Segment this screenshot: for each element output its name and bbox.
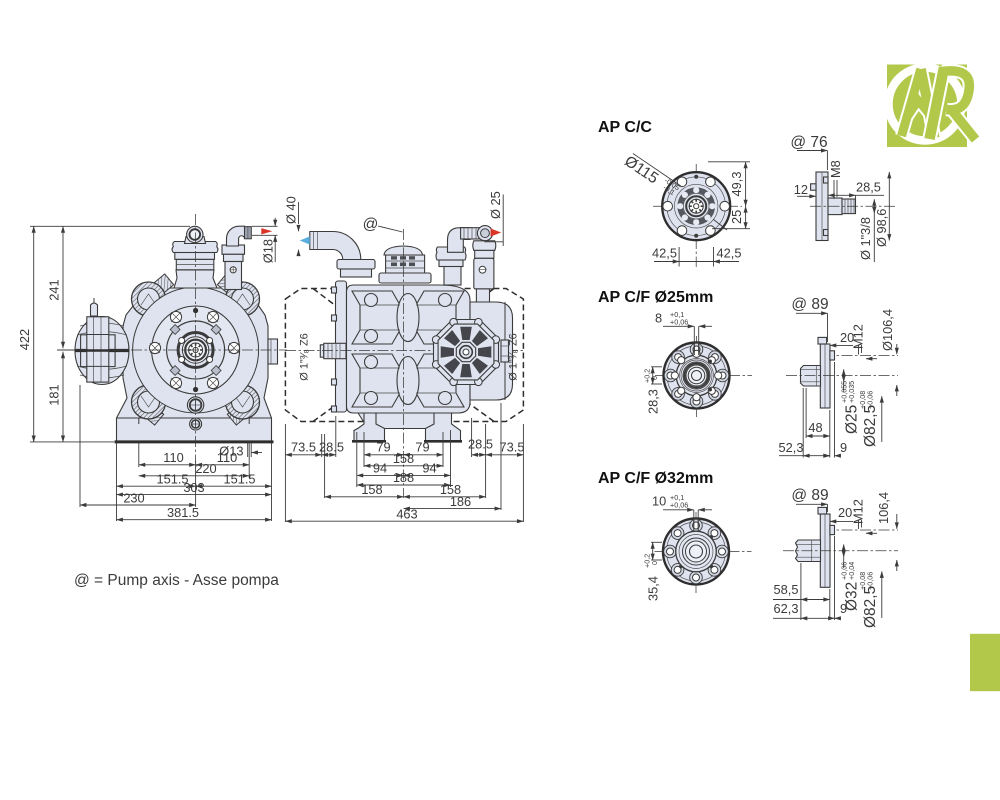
svg-text:@ 89: @ 89 xyxy=(791,487,828,504)
svg-text:AP C/F Ø25mm: AP C/F Ø25mm xyxy=(598,289,713,306)
svg-text:58,5: 58,5 xyxy=(774,582,799,597)
svg-text:M8: M8 xyxy=(828,160,843,178)
svg-text:422: 422 xyxy=(17,329,32,350)
svg-text:241: 241 xyxy=(47,279,62,300)
svg-text:+0,06: +0,06 xyxy=(670,501,688,510)
svg-text:230: 230 xyxy=(123,490,144,505)
svg-text:+0,06: +0,06 xyxy=(866,391,875,409)
svg-text:220: 220 xyxy=(195,461,216,476)
svg-text:188: 188 xyxy=(393,470,414,485)
svg-text:110: 110 xyxy=(217,450,237,465)
svg-text:181: 181 xyxy=(47,384,62,405)
svg-text:+0,04: +0,04 xyxy=(847,562,856,580)
svg-text:463: 463 xyxy=(396,506,417,521)
svg-text:@ = Pump axis - Asse pompa: @ = Pump axis - Asse pompa xyxy=(74,572,279,589)
svg-text:9: 9 xyxy=(840,440,847,455)
svg-text:35,4: 35,4 xyxy=(646,576,661,601)
svg-text:Ø 1"³⁄₈ Z6: Ø 1"³⁄₈ Z6 xyxy=(299,333,311,381)
svg-text:AP C/F Ø32mm: AP C/F Ø32mm xyxy=(598,470,713,487)
svg-text:Ø18: Ø18 xyxy=(261,239,276,263)
svg-text:106,4: 106,4 xyxy=(876,492,891,524)
svg-text:110: 110 xyxy=(163,450,183,465)
svg-text:151.5: 151.5 xyxy=(223,471,255,486)
svg-text:Ø 25: Ø 25 xyxy=(488,191,503,219)
svg-text:186: 186 xyxy=(450,494,471,509)
svg-text:158: 158 xyxy=(361,482,382,497)
svg-text:158: 158 xyxy=(393,451,414,466)
svg-text:381.5: 381.5 xyxy=(167,505,199,520)
svg-text:Ø 40: Ø 40 xyxy=(284,196,299,224)
svg-text:M12: M12 xyxy=(851,499,866,524)
svg-text:M12: M12 xyxy=(851,324,866,349)
svg-text:Ø 1"³⁄₈ Z6: Ø 1"³⁄₈ Z6 xyxy=(508,333,520,381)
svg-text:Ø106,4: Ø106,4 xyxy=(880,309,895,351)
svg-text:28.5: 28.5 xyxy=(319,440,344,455)
svg-text:Ø115: Ø115 xyxy=(621,153,661,188)
svg-text:79: 79 xyxy=(376,440,390,455)
svg-text:49,3: 49,3 xyxy=(729,172,744,197)
svg-text:73.5: 73.5 xyxy=(291,440,316,455)
svg-text:0: 0 xyxy=(650,376,659,380)
svg-text:25: 25 xyxy=(729,210,744,224)
svg-text:Ø82,5: Ø82,5 xyxy=(862,586,879,628)
svg-text:28.5: 28.5 xyxy=(468,437,493,452)
svg-text:28,5: 28,5 xyxy=(856,180,881,195)
svg-text:10: 10 xyxy=(652,494,666,509)
svg-text:+0,06: +0,06 xyxy=(670,318,688,327)
svg-text:Ø 1"3/8: Ø 1"3/8 xyxy=(858,217,873,260)
svg-text:42,5: 42,5 xyxy=(717,246,742,261)
svg-text:52,3: 52,3 xyxy=(779,440,804,455)
svg-text:Ø82,5: Ø82,5 xyxy=(862,405,879,447)
svg-text:62,3: 62,3 xyxy=(774,601,799,616)
svg-text:Ø 98,6: Ø 98,6 xyxy=(874,209,889,247)
svg-text:94: 94 xyxy=(422,461,436,476)
svg-text:303: 303 xyxy=(183,480,204,495)
svg-text:94: 94 xyxy=(373,461,387,476)
svg-text:8: 8 xyxy=(655,311,662,326)
svg-text:+0,06: +0,06 xyxy=(866,572,875,590)
svg-text:79: 79 xyxy=(415,440,429,455)
svg-text:@: @ xyxy=(363,216,379,233)
svg-text:73.5: 73.5 xyxy=(500,440,525,455)
svg-text:12: 12 xyxy=(794,182,808,197)
svg-text:@ 76: @ 76 xyxy=(790,134,827,151)
svg-text:28,3: 28,3 xyxy=(646,389,661,414)
svg-text:AP C/C: AP C/C xyxy=(598,119,652,136)
svg-text:@ 89: @ 89 xyxy=(791,296,828,313)
svg-text:+0,035: +0,035 xyxy=(847,381,856,403)
svg-text:0: 0 xyxy=(650,561,659,565)
svg-text:42,5: 42,5 xyxy=(652,246,677,261)
svg-text:48: 48 xyxy=(808,420,822,435)
